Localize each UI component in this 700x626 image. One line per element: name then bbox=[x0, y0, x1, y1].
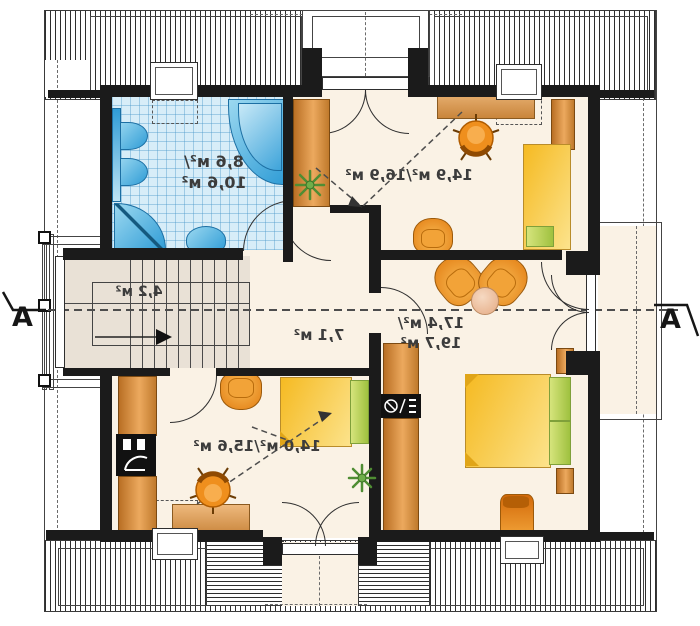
roof-window bbox=[150, 62, 198, 100]
bed-pillow bbox=[350, 380, 369, 444]
wall bbox=[108, 85, 304, 97]
wall bbox=[408, 48, 428, 97]
balcony-railing bbox=[42, 236, 102, 245]
bed-pillow bbox=[549, 377, 571, 421]
wall bbox=[377, 530, 600, 542]
wall bbox=[358, 537, 377, 565]
wall bbox=[566, 251, 600, 275]
area-text: 8,6 м²/ bbox=[184, 152, 244, 171]
room-label-stairs: 4,2 м² bbox=[102, 283, 176, 301]
wardrobe bbox=[118, 476, 157, 534]
wardrobe bbox=[118, 376, 157, 436]
roof-window bbox=[152, 528, 198, 560]
wall bbox=[600, 532, 654, 540]
balcony-post bbox=[38, 231, 51, 244]
wall bbox=[283, 97, 293, 262]
wall bbox=[592, 90, 654, 98]
room-label-master-bedroom: 17,4 м²/ 19,7 м² bbox=[386, 314, 476, 353]
armchair bbox=[413, 218, 453, 254]
balcony-railing bbox=[42, 234, 47, 390]
wall bbox=[369, 333, 381, 540]
balcony-post bbox=[38, 374, 51, 387]
roof-window bbox=[496, 64, 542, 100]
wall bbox=[566, 351, 600, 375]
wall bbox=[302, 48, 322, 97]
wardrobe bbox=[293, 99, 330, 207]
top-dormer-threshold bbox=[322, 77, 410, 90]
balcony-railing bbox=[42, 379, 102, 388]
wardrobe bbox=[383, 418, 419, 535]
bed-pillow bbox=[526, 226, 554, 247]
chair-back bbox=[503, 496, 529, 508]
bed-fold-corner bbox=[465, 374, 479, 388]
roof-window bbox=[500, 536, 544, 564]
bottom-dormer-edge bbox=[265, 604, 367, 605]
wall bbox=[48, 90, 108, 98]
area-text: 17,4 м²/ bbox=[398, 314, 465, 332]
wall bbox=[263, 537, 282, 565]
top-dormer-axis bbox=[365, 12, 366, 76]
room-label-bathroom: 8,6 м²/ 10,6 м² bbox=[158, 152, 270, 194]
top-dormer-rail-inner bbox=[312, 16, 420, 58]
wall bbox=[588, 97, 600, 253]
wall bbox=[369, 205, 381, 293]
roof-window-projection bbox=[152, 100, 198, 124]
wall bbox=[63, 368, 170, 376]
coffee-table bbox=[471, 287, 499, 315]
bottom-dormer-axis bbox=[319, 556, 320, 606]
section-marker-a-right: A bbox=[660, 304, 681, 335]
wall bbox=[381, 250, 562, 260]
area-text: 10,6 м² bbox=[181, 173, 246, 192]
area-text: 19,7 м² bbox=[400, 334, 461, 352]
section-marker-a-left: A bbox=[12, 302, 33, 333]
balcony-railing bbox=[49, 234, 54, 390]
terrace-floor bbox=[598, 226, 656, 414]
room-label-hall: 7,1 м² bbox=[276, 326, 362, 346]
wall bbox=[63, 248, 243, 260]
terrace-dash bbox=[636, 226, 637, 414]
room-label-lower-room: 14,0 м²/15,6 м² bbox=[190, 437, 324, 457]
wall bbox=[100, 368, 112, 542]
tall-cabinet bbox=[551, 99, 575, 150]
wall bbox=[588, 373, 600, 542]
wall bbox=[46, 530, 100, 540]
bed-pillow bbox=[549, 421, 571, 465]
stair-window bbox=[55, 256, 65, 368]
nightstand bbox=[556, 468, 574, 494]
room-label-upper-bedroom: 14,9 м²/16,9 м² bbox=[334, 166, 484, 186]
floor-plan: 8,6 м²/ 10,6 м² 14,9 м²/16,9 м² 4,2 м² 7… bbox=[0, 0, 700, 626]
wall bbox=[216, 368, 371, 376]
bathroom-counter bbox=[112, 108, 121, 202]
wall bbox=[100, 85, 112, 255]
bed-fold-corner bbox=[465, 452, 479, 466]
armchair bbox=[220, 372, 262, 410]
